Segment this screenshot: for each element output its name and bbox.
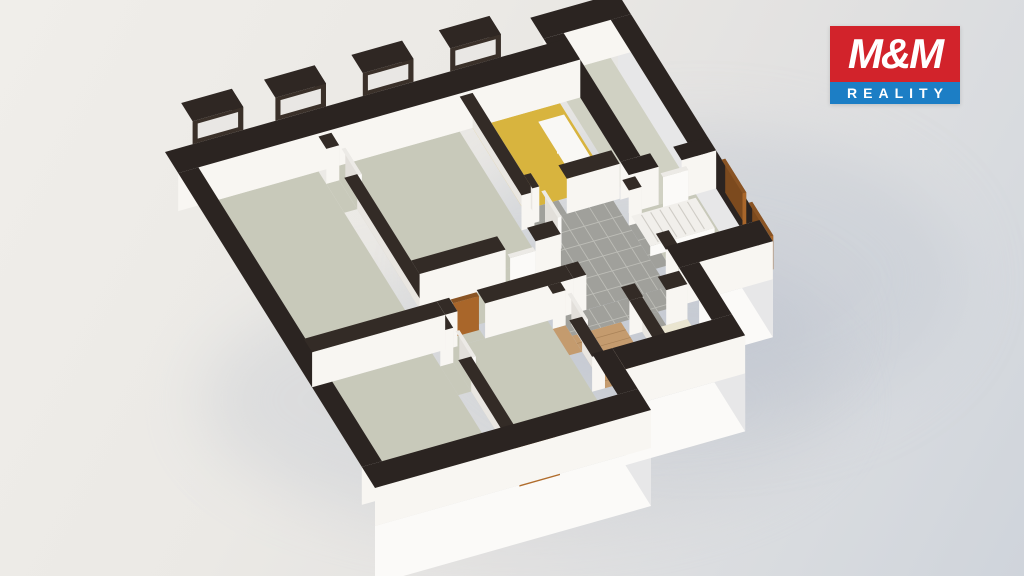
agency-logo: M&M REALITY [830, 26, 960, 104]
entry-door-1-south [743, 192, 747, 227]
floor-plan-render: M&M REALITY [0, 0, 1024, 576]
interior-wall-south [326, 145, 339, 184]
interior-wall-south [666, 284, 687, 325]
interior-wall-south [532, 187, 539, 224]
agency-logo-title: M&M [830, 26, 960, 82]
agency-logo-subtitle: REALITY [830, 82, 960, 104]
interior-wall-south [553, 290, 566, 329]
